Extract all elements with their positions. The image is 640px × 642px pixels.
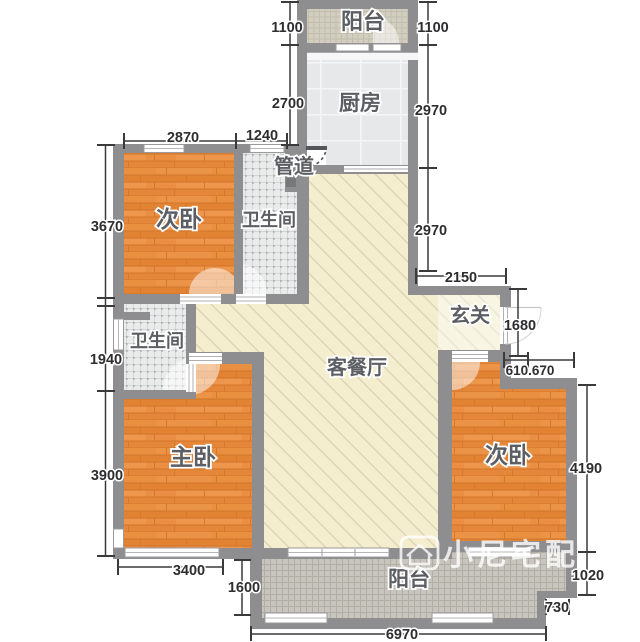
svg-text:6970: 6970 bbox=[386, 627, 418, 642]
svg-text:阳台: 阳台 bbox=[388, 567, 430, 591]
svg-text:2150: 2150 bbox=[445, 270, 477, 286]
svg-text:1240: 1240 bbox=[246, 128, 278, 144]
svg-text:卫生间: 卫生间 bbox=[130, 330, 184, 351]
svg-text:玄关: 玄关 bbox=[450, 303, 490, 327]
svg-text:4190: 4190 bbox=[570, 461, 602, 477]
svg-text:2870: 2870 bbox=[167, 130, 199, 146]
svg-text:主卧: 主卧 bbox=[170, 444, 216, 470]
svg-text:2970: 2970 bbox=[415, 103, 447, 119]
svg-text:3400: 3400 bbox=[173, 563, 205, 579]
svg-text:3900: 3900 bbox=[91, 468, 123, 484]
svg-text:客餐厅: 客餐厅 bbox=[326, 355, 387, 379]
svg-text:厨房: 厨房 bbox=[339, 91, 381, 115]
svg-text:1680: 1680 bbox=[504, 318, 536, 334]
svg-text:610.670: 610.670 bbox=[506, 363, 555, 378]
svg-text:1100: 1100 bbox=[271, 20, 302, 36]
svg-text:2700: 2700 bbox=[272, 96, 304, 112]
svg-text:次卧: 次卧 bbox=[485, 442, 531, 468]
svg-text:次卧: 次卧 bbox=[156, 206, 202, 232]
svg-text:管道: 管道 bbox=[274, 154, 314, 178]
svg-text:2970: 2970 bbox=[415, 223, 447, 239]
svg-text:小尼宅配: 小尼宅配 bbox=[443, 538, 579, 572]
svg-text:阳台: 阳台 bbox=[341, 9, 385, 34]
svg-text:3670: 3670 bbox=[91, 219, 123, 235]
svg-text:730: 730 bbox=[545, 600, 569, 616]
svg-text:1940: 1940 bbox=[90, 352, 122, 368]
svg-text:卫生间: 卫生间 bbox=[242, 209, 296, 230]
svg-text:1600: 1600 bbox=[228, 580, 260, 596]
svg-text:1100: 1100 bbox=[417, 20, 448, 36]
